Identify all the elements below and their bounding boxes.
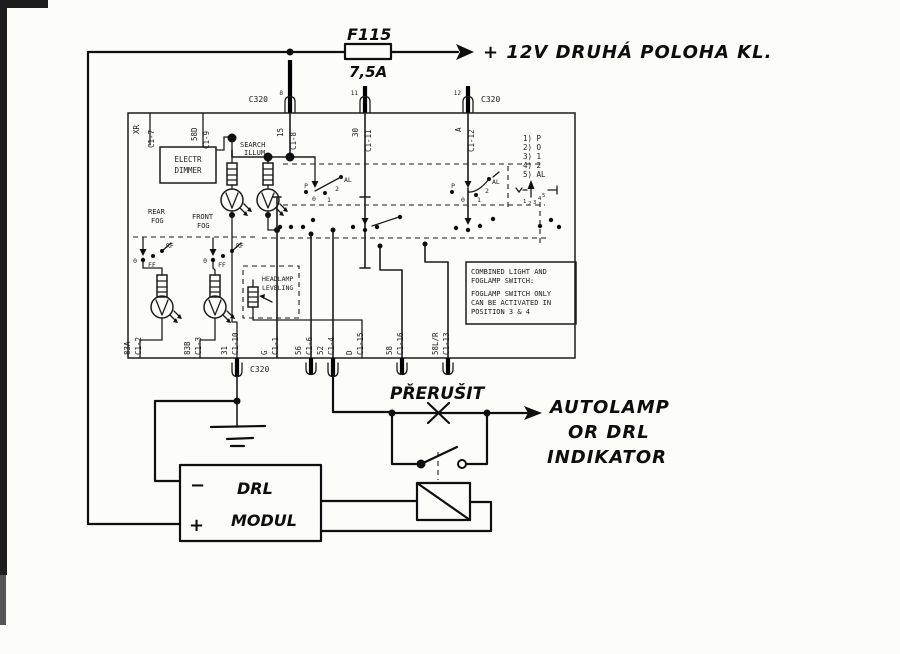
- headlamp-leveling-block: HEADLAMP LEVELING: [243, 266, 362, 358]
- electr-dimmer-block: ELECTR DIMMER: [160, 147, 216, 183]
- lamp-symbol: [151, 296, 182, 323]
- drl-module: − DRL + MODUL: [88, 401, 321, 541]
- module-label: DRL: [237, 479, 273, 498]
- terminal-label: 83B: [183, 341, 192, 355]
- note-line: COMBINED LIGHT AND: [471, 268, 547, 276]
- connector-c320-bottom: C320: [232, 358, 453, 377]
- indicator-label: OR DRL: [568, 422, 650, 443]
- terminal-label: 83A: [123, 341, 132, 355]
- ground-symbol: [211, 377, 265, 446]
- potentiometer-symbol: [248, 287, 258, 307]
- switch-contact-open: [458, 460, 466, 468]
- supply-circuit: F115 7,5A + 12V DRUHÁ POLOHA KL.: [88, 25, 772, 524]
- fuse-name: F115: [347, 25, 391, 44]
- position-label: 1: [327, 196, 331, 204]
- note-line: POSITION 3 & 4: [471, 308, 530, 316]
- circuit-label: C1-10: [231, 332, 240, 355]
- rotary-digit: 1: [523, 199, 526, 205]
- arrow-up-icon: [528, 180, 535, 189]
- scan-edge-artifacts: [0, 0, 48, 625]
- position-label: AL: [492, 178, 500, 186]
- rotary-digit: 3: [533, 200, 536, 206]
- terminal-label: 58L/R: [431, 332, 440, 355]
- fuse-symbol: [345, 44, 391, 59]
- position-label: RF: [236, 242, 244, 250]
- position-label: 2: [335, 185, 339, 193]
- switch-lever: [421, 447, 457, 464]
- minus-terminal: −: [190, 475, 206, 496]
- pin-number: 12: [454, 90, 462, 97]
- circuit-label: C1-15: [356, 332, 365, 355]
- block-label: FOG: [151, 217, 164, 225]
- position-label: 0: [461, 196, 465, 204]
- circuit-label: C1-4: [327, 336, 336, 355]
- edge-label: XR: [132, 124, 141, 134]
- edge-label: 58D: [190, 127, 199, 141]
- circuit-label: C1-16: [396, 332, 405, 355]
- edge-label: C1-7: [147, 130, 156, 148]
- terminal-label: 58: [385, 345, 394, 355]
- terminal-label: 52: [316, 346, 325, 355]
- block-label: FRONT: [192, 213, 214, 221]
- supply-label: + 12V DRUHÁ POLOHA KL.: [483, 41, 772, 63]
- scanned-schematic-page: F115 7,5A + 12V DRUHÁ POLOHA KL. 8 C320 …: [0, 0, 900, 654]
- block-label: SEARCH: [240, 141, 265, 149]
- connector-label: C320: [250, 365, 269, 374]
- indicator-output: AUTOLAMP OR DRL INDIKATOR: [487, 397, 670, 468]
- main-switch-contacts: P 0 1 2 AL P 0 1 2 AL: [262, 113, 561, 358]
- position-label: 0: [133, 257, 137, 265]
- lamp-symbol: [221, 189, 252, 216]
- position-label: P: [451, 182, 455, 190]
- pin-number: 11: [351, 90, 359, 97]
- circuit-label: C1-1: [271, 337, 280, 355]
- terminal-label: 56: [294, 345, 303, 355]
- position-label: RF: [166, 242, 174, 250]
- position-label: 0: [203, 257, 207, 265]
- resistor-symbol: [227, 163, 237, 185]
- resistor-symbol: [157, 275, 167, 297]
- switch-unit-box: XR C1-7 58D C1-9 15 C1-8 30 C1-11 A C1-1…: [123, 113, 575, 358]
- legend-line: 1) P: [523, 134, 542, 143]
- block-label: ELECTR: [174, 155, 202, 164]
- connector-label: C320: [481, 95, 500, 104]
- block-label: REAR: [148, 208, 166, 216]
- lamp-symbol: [257, 189, 288, 216]
- position-label: 0: [312, 195, 316, 203]
- contact-arrow-icon: [362, 218, 369, 225]
- position-label: 1: [477, 196, 481, 204]
- module-label: MODUL: [231, 511, 297, 530]
- position-label: AL: [344, 176, 352, 184]
- circuit-label: C1-6: [305, 336, 314, 355]
- indicator-label: AUTOLAMP: [548, 397, 670, 418]
- rotary-digit: 5: [542, 193, 545, 199]
- position-label: FF: [218, 261, 226, 269]
- fog-switches: REAR FOG FRONT FOG 0 FF RF 0 FF RF: [133, 208, 258, 275]
- rotary-digit: 2: [528, 201, 531, 207]
- lamp-symbol: [204, 296, 235, 323]
- position-legend: 1) P 2) O 3) 1 4) 2 5) AL: [523, 134, 546, 179]
- circuit-label: C1-13: [442, 332, 451, 355]
- terminal-label: G: [260, 350, 269, 355]
- legend-line: 3) 1: [523, 152, 541, 161]
- position-label: 2: [485, 187, 489, 195]
- block-label: DIMMER: [174, 166, 202, 175]
- contact-arrow-icon: [465, 181, 472, 188]
- indicator-label: INDIKATOR: [547, 447, 667, 468]
- terminal-label: 15: [276, 128, 285, 137]
- relay: [321, 483, 491, 531]
- pin-number: 8: [279, 90, 283, 97]
- legend-line: 5) AL: [523, 170, 546, 179]
- legend-line: 2) O: [523, 143, 542, 152]
- terminal-label: 31: [220, 346, 229, 355]
- search-illum-lamps: SEARCH ILLUM: [216, 113, 315, 358]
- contact-arrow-icon: [465, 218, 472, 225]
- arrow-left-icon: [259, 294, 265, 299]
- terminal-label: D: [345, 350, 354, 355]
- resistor-symbol: [210, 275, 220, 297]
- prerusit-interrupt: PŘERUŠIT: [333, 377, 491, 480]
- contact-arrow-icon: [312, 181, 319, 188]
- connector-label: C320: [249, 95, 268, 104]
- contact-arrow-icon: [210, 249, 217, 256]
- resistor-symbol: [263, 163, 273, 185]
- terminal-label: 30: [351, 127, 360, 137]
- terminal-label: A: [454, 127, 463, 132]
- prerusit-label: PŘERUŠIT: [390, 382, 486, 404]
- block-label: ILLUM: [244, 149, 265, 157]
- plus-terminal: +: [189, 515, 205, 536]
- fuse-rating: 7,5A: [349, 63, 387, 81]
- legend-line: 4) 2: [523, 161, 541, 170]
- contact-arrow-icon: [140, 249, 147, 256]
- block-label: FOG: [197, 222, 210, 230]
- note-line: FOGLAMP SWITCH:: [471, 277, 534, 285]
- position-label: P: [304, 182, 308, 190]
- note-line: FOGLAMP SWITCH ONLY: [471, 290, 552, 298]
- note-line: CAN BE ACTIVATED IN: [471, 299, 551, 307]
- note-box: COMBINED LIGHT AND FOGLAMP SWITCH: FOGLA…: [466, 262, 576, 324]
